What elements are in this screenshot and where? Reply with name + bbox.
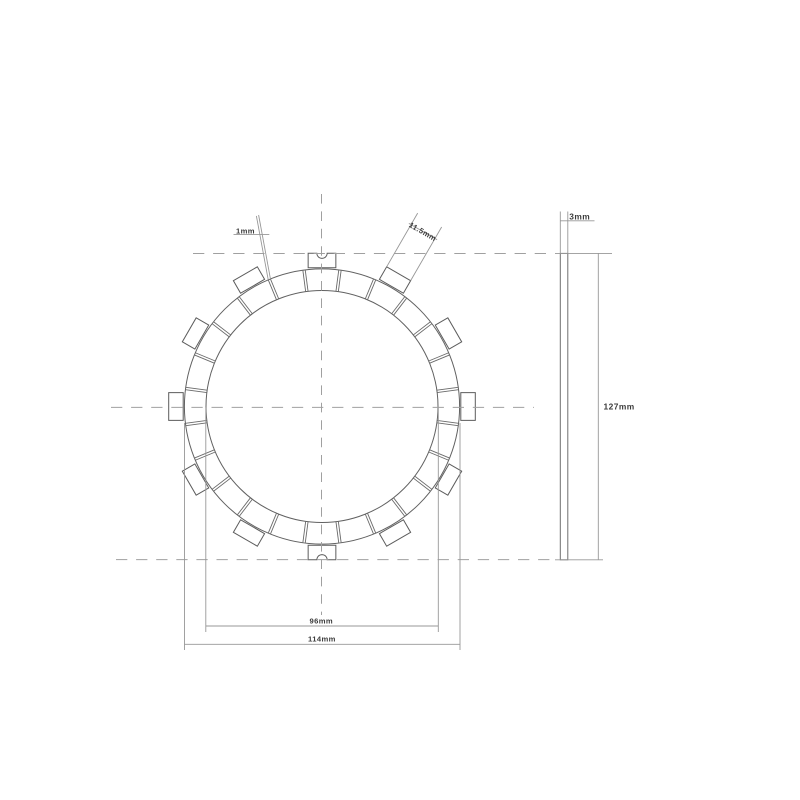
svg-text:127mm: 127mm: [604, 402, 635, 412]
svg-text:96mm: 96mm: [310, 617, 334, 626]
svg-text:11.5mm: 11.5mm: [407, 220, 438, 243]
svg-text:3mm: 3mm: [569, 212, 590, 222]
svg-text:114mm: 114mm: [308, 635, 336, 644]
svg-text:1mm: 1mm: [236, 226, 255, 235]
